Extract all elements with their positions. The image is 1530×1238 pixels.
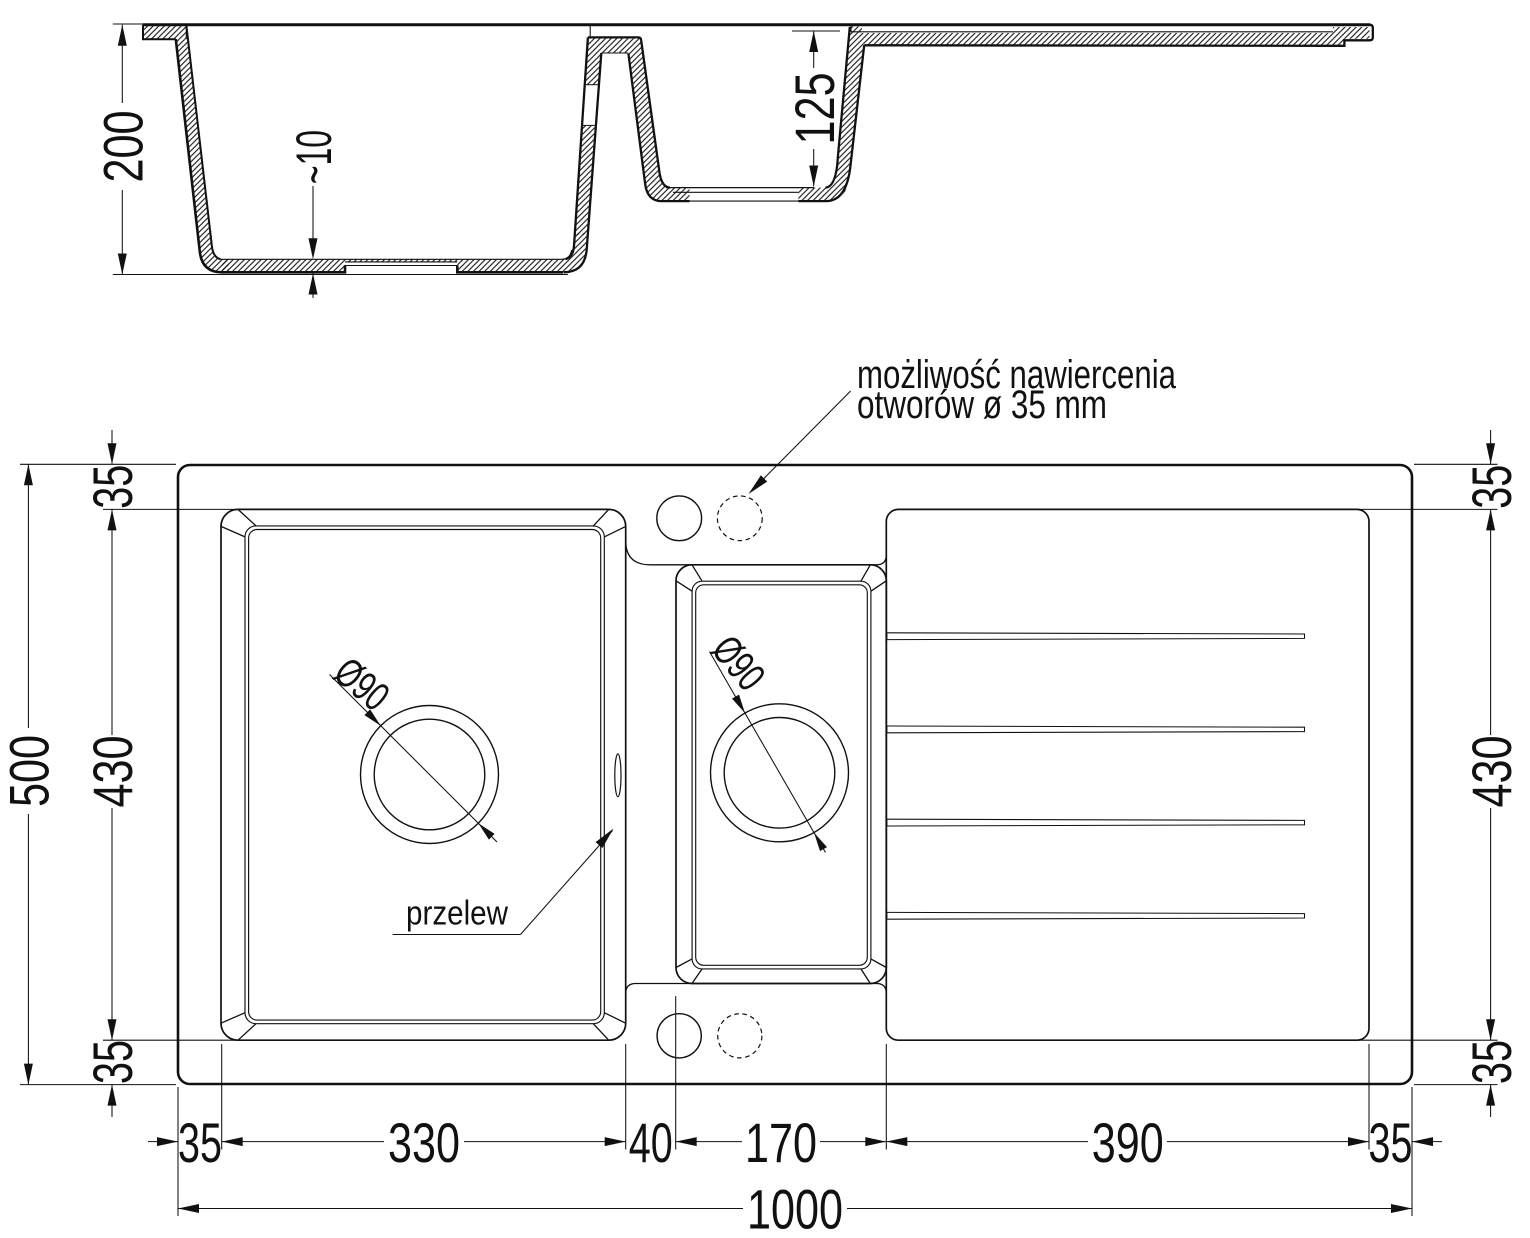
svg-text:500: 500	[0, 735, 61, 807]
svg-text:35: 35	[81, 465, 144, 509]
svg-text:35: 35	[1460, 1040, 1523, 1084]
svg-text:przelew: przelew	[406, 895, 508, 933]
svg-text:35: 35	[1460, 465, 1523, 509]
svg-text:200: 200	[91, 111, 154, 183]
svg-text:430: 430	[1460, 736, 1523, 808]
svg-text:430: 430	[81, 736, 144, 808]
svg-text:35: 35	[81, 1040, 144, 1084]
svg-text:330: 330	[388, 1111, 460, 1174]
svg-text:~10: ~10	[286, 130, 342, 184]
svg-text:390: 390	[1092, 1111, 1164, 1174]
svg-text:35: 35	[178, 1111, 222, 1174]
svg-text:otworów ø 35 mm: otworów ø 35 mm	[857, 383, 1107, 427]
svg-text:1000: 1000	[747, 1178, 843, 1238]
svg-text:35: 35	[1369, 1111, 1413, 1174]
svg-text:170: 170	[745, 1111, 817, 1174]
svg-text:40: 40	[629, 1111, 673, 1174]
svg-text:125: 125	[783, 73, 846, 145]
